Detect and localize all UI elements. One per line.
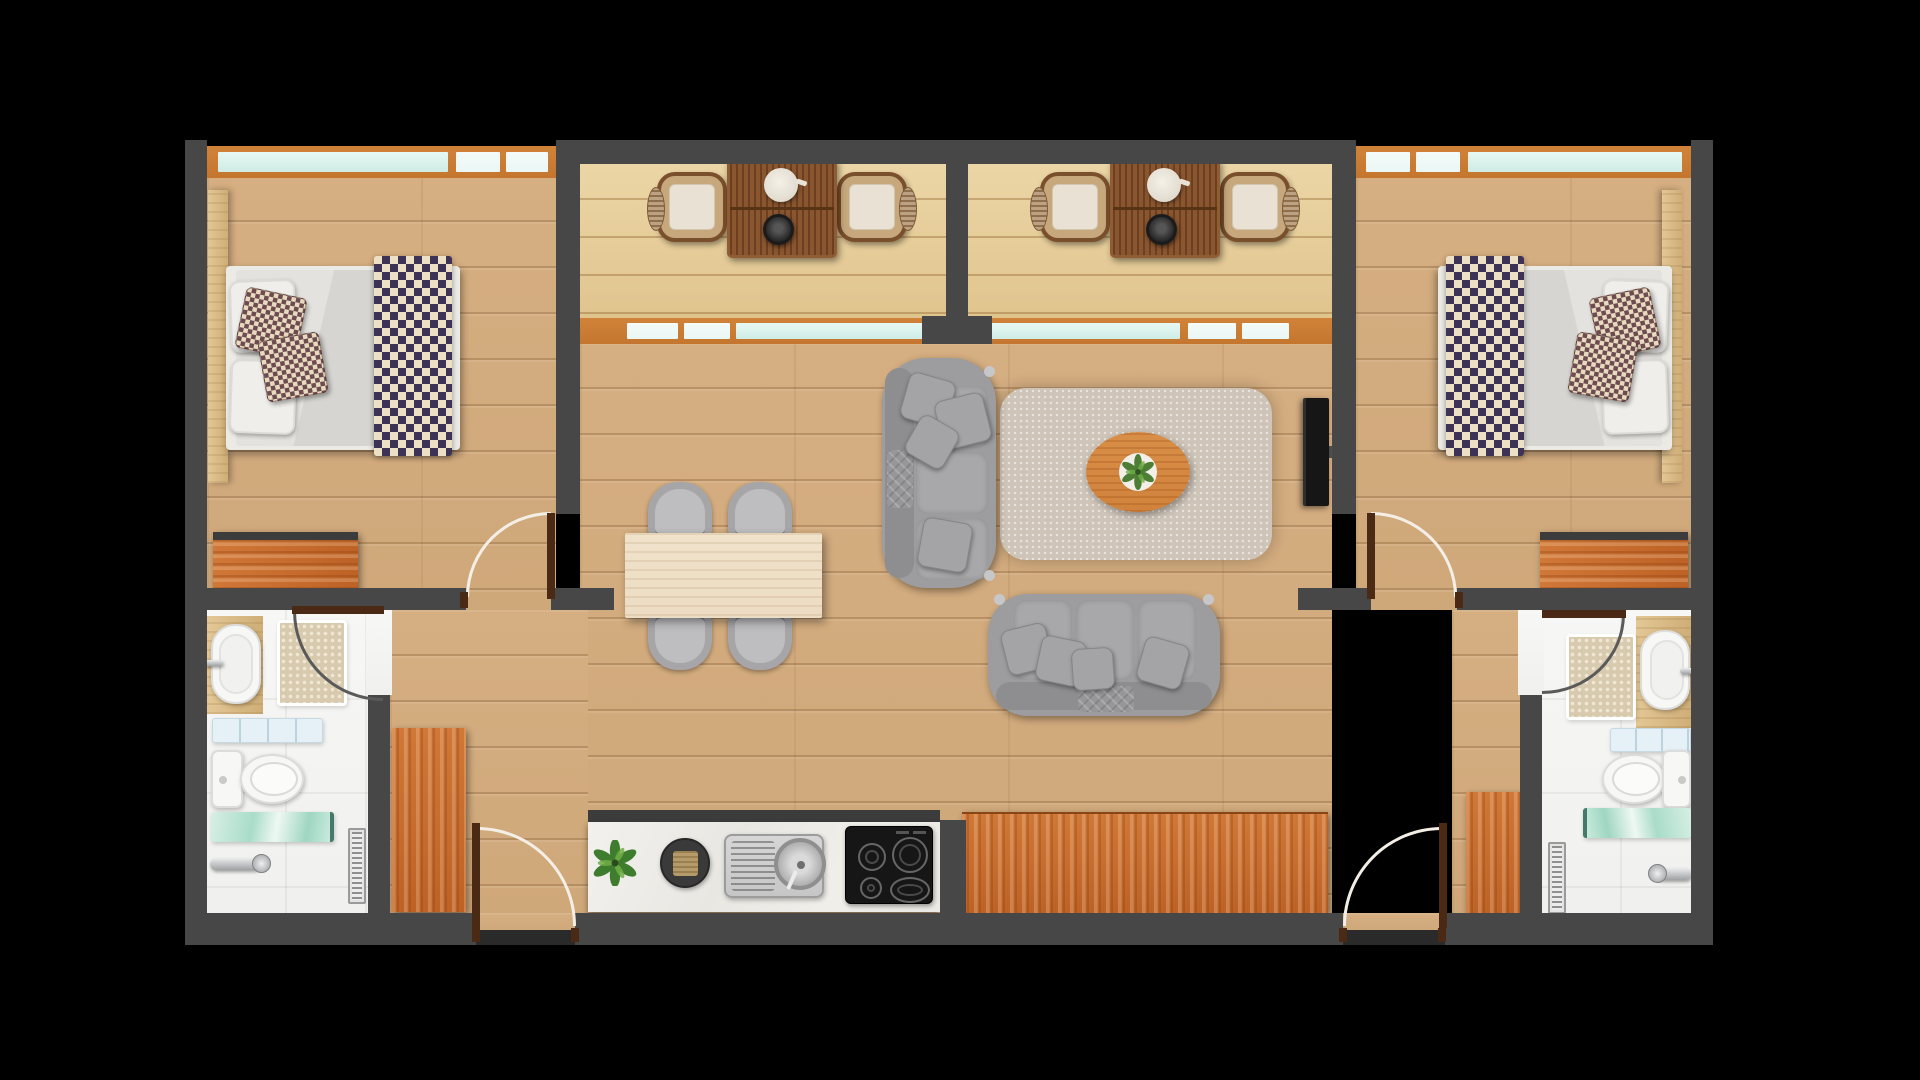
headboard-panel-left xyxy=(208,190,228,483)
bedroom-right-window-pane-a xyxy=(1366,152,1410,172)
armchair-fan-side xyxy=(899,187,917,231)
dining-chair-top-right xyxy=(728,482,792,540)
bed-right-throw-runner xyxy=(1446,256,1524,456)
dining-chair-seat xyxy=(735,615,785,663)
entry-right-door-jamb xyxy=(1339,928,1347,942)
entry-right-sill xyxy=(1343,930,1445,945)
bedroom-right-window-pane-long xyxy=(1468,152,1682,172)
floor-plan-canvas xyxy=(0,0,1920,1080)
sofa-foot xyxy=(984,366,995,377)
kitchen-sink-unit xyxy=(724,834,824,898)
wall-bedroom-right-west-upper xyxy=(1332,140,1356,514)
balcony-left-window-pane-a xyxy=(627,323,678,339)
sofa-horizontal-pillow-c xyxy=(1071,647,1116,692)
sink-faucet xyxy=(205,660,223,666)
dresser-right xyxy=(1540,532,1688,594)
entry-left-door-jamb xyxy=(472,928,480,942)
bathroom-right-toilet-tank xyxy=(1662,750,1691,808)
sofa-vertical-quilt-pad xyxy=(887,450,913,508)
dining-chair-bottom-right xyxy=(728,612,792,670)
bathroom-left-glass-shelf xyxy=(211,812,334,842)
armchair-cushion xyxy=(669,184,715,230)
bed-left-throw-runner xyxy=(374,256,452,456)
entry-right-door-panel xyxy=(1439,823,1447,928)
balcony-right-window-pane-b xyxy=(1242,323,1289,339)
drain-grate xyxy=(1552,846,1562,910)
sink-drain-dot xyxy=(797,861,805,869)
cooktop-controls xyxy=(896,831,909,834)
coffee-table-centerpiece xyxy=(1119,453,1157,491)
bathroom-right-sink xyxy=(1640,630,1690,710)
kitchen-upper-cabinet-edge xyxy=(588,810,940,822)
bed-left-cushion-b xyxy=(257,331,329,403)
wardrobe-right xyxy=(1466,792,1526,916)
toilet-flush-button xyxy=(1678,776,1686,784)
bed-right-cushion-b xyxy=(1567,331,1639,403)
sofa-foot xyxy=(984,570,995,581)
table-divider xyxy=(730,207,834,210)
bathroom-left-door-panel xyxy=(292,606,384,614)
sofa-vertical-pillow-d xyxy=(916,516,974,574)
wall-bathroom-left-partition xyxy=(368,695,390,945)
bathroom-right-floor-drain xyxy=(1548,842,1566,914)
dining-chair-bottom-left xyxy=(648,612,712,670)
wardrobe-left xyxy=(392,728,466,912)
dining-chair-seat xyxy=(655,489,705,537)
sink-basin-inner xyxy=(1650,640,1684,700)
sink-basin-inner xyxy=(219,634,253,694)
armchair-cushion xyxy=(1232,184,1278,230)
bedroom-left-window-pane-a xyxy=(456,152,500,172)
table-divider xyxy=(1113,207,1217,210)
toilet-seat xyxy=(1612,762,1660,796)
bedroom-right-window-pane-b xyxy=(1416,152,1460,172)
balcony-left-armchair-east xyxy=(837,172,907,242)
entry-left-sill xyxy=(476,930,575,945)
bedroom-right-door-jamb xyxy=(1455,592,1463,608)
cooktop-burner-medium xyxy=(858,843,886,871)
bathroom-left-toilet-tank xyxy=(211,750,243,808)
dining-chair-seat xyxy=(655,615,705,663)
balcony-right-teapot xyxy=(1147,168,1181,202)
bathroom-left-frosted-shelf xyxy=(212,718,323,743)
bathroom-right-door-panel xyxy=(1542,610,1626,618)
wall-kitchen-stub xyxy=(940,820,966,913)
bathroom-right-towel-knob xyxy=(1648,864,1667,883)
entry-right-door-jamb xyxy=(1438,928,1446,942)
wall-outer-right xyxy=(1691,140,1713,945)
wall-separator-right-stub xyxy=(1298,588,1371,610)
coffee-table-oval xyxy=(1086,432,1190,512)
potted-plant-icon xyxy=(1119,453,1157,491)
bedroom-left-window-pane-long xyxy=(218,152,448,172)
balcony-right-kettle xyxy=(1146,214,1177,245)
armchair-cushion xyxy=(849,184,895,230)
bathroom-right-frosted-shelf xyxy=(1610,728,1691,752)
wall-bottom-east xyxy=(1445,913,1713,945)
cooktop-controls xyxy=(913,831,926,834)
balcony-right-armchair-east xyxy=(1220,172,1290,242)
bathroom-right-glass-shelf xyxy=(1583,808,1691,838)
bathroom-left-sink xyxy=(211,624,261,704)
balcony-left-kettle xyxy=(763,214,794,245)
balcony-right-window-pane-a xyxy=(1188,323,1236,339)
cooktop-burner-large xyxy=(892,837,928,873)
wall-bedroom-left-east-upper xyxy=(556,140,580,514)
bathroom-right-toilet-bowl xyxy=(1602,754,1666,804)
sink-basin xyxy=(774,838,826,890)
toilet-flush-button xyxy=(219,776,227,784)
balcony-right-armchair-west xyxy=(1040,172,1110,242)
balcony-left-teapot xyxy=(764,168,798,202)
bathroom-left-towel-knob xyxy=(252,854,271,873)
armchair-cushion xyxy=(1052,184,1098,230)
wall-outer-left xyxy=(185,140,207,945)
sink-drainboard xyxy=(731,841,775,891)
armchair-fan-side xyxy=(1030,187,1048,231)
bathroom-right-doorway-floor xyxy=(1518,610,1544,695)
dining-chair-top-left xyxy=(648,482,712,540)
bedroom-left-door-jamb xyxy=(460,592,468,608)
toilet-seat xyxy=(250,762,298,796)
wall-balcony-divider-footing xyxy=(922,316,992,344)
wall-bottom-west xyxy=(185,913,476,945)
balcony-left-window-pane-long xyxy=(736,323,938,339)
bedroom-right-door-panel xyxy=(1367,513,1375,599)
balcony-right-window-pane-long xyxy=(976,323,1180,339)
balcony-left-window-pane-b xyxy=(684,323,730,339)
bedroom-left-door-panel xyxy=(547,513,555,599)
entry-left-door-panel xyxy=(472,823,480,928)
sofa-foot xyxy=(1203,594,1214,605)
drain-grate xyxy=(352,832,362,900)
wall-separator-right xyxy=(1457,588,1713,610)
kitchen-plant-icon xyxy=(592,840,638,886)
sofa-vertical xyxy=(882,358,996,588)
balcony-left-armchair-west xyxy=(657,172,727,242)
armchair-fan-side xyxy=(647,187,665,231)
entry-right-door-swing xyxy=(1343,827,1442,926)
wall-bottom-center xyxy=(575,913,1343,945)
dining-chair-seat xyxy=(735,489,785,537)
kitchen-serving-tray xyxy=(660,838,710,888)
wall-separator-left-stub xyxy=(551,588,614,610)
woven-mat xyxy=(673,851,698,876)
entry-left-door-jamb xyxy=(571,928,579,942)
sideboard xyxy=(962,812,1328,913)
wall-mounted-tv xyxy=(1303,398,1329,506)
wall-bathroom-right-partition xyxy=(1520,695,1542,945)
bathroom-left-toilet-bowl xyxy=(240,754,304,804)
wall-balcony-divider xyxy=(946,140,968,344)
armchair-fan-side xyxy=(1282,187,1300,231)
dining-table xyxy=(625,533,822,618)
sofa-horizontal xyxy=(988,594,1220,716)
bathroom-left-floor-drain xyxy=(348,828,366,904)
kitchen-cooktop xyxy=(845,826,933,904)
dresser-left xyxy=(213,532,358,594)
cooktop-burner-small xyxy=(860,877,882,899)
cooktop-burner-oval xyxy=(890,877,930,903)
sofa-foot xyxy=(994,594,1005,605)
bedroom-left-window-pane-b xyxy=(506,152,548,172)
